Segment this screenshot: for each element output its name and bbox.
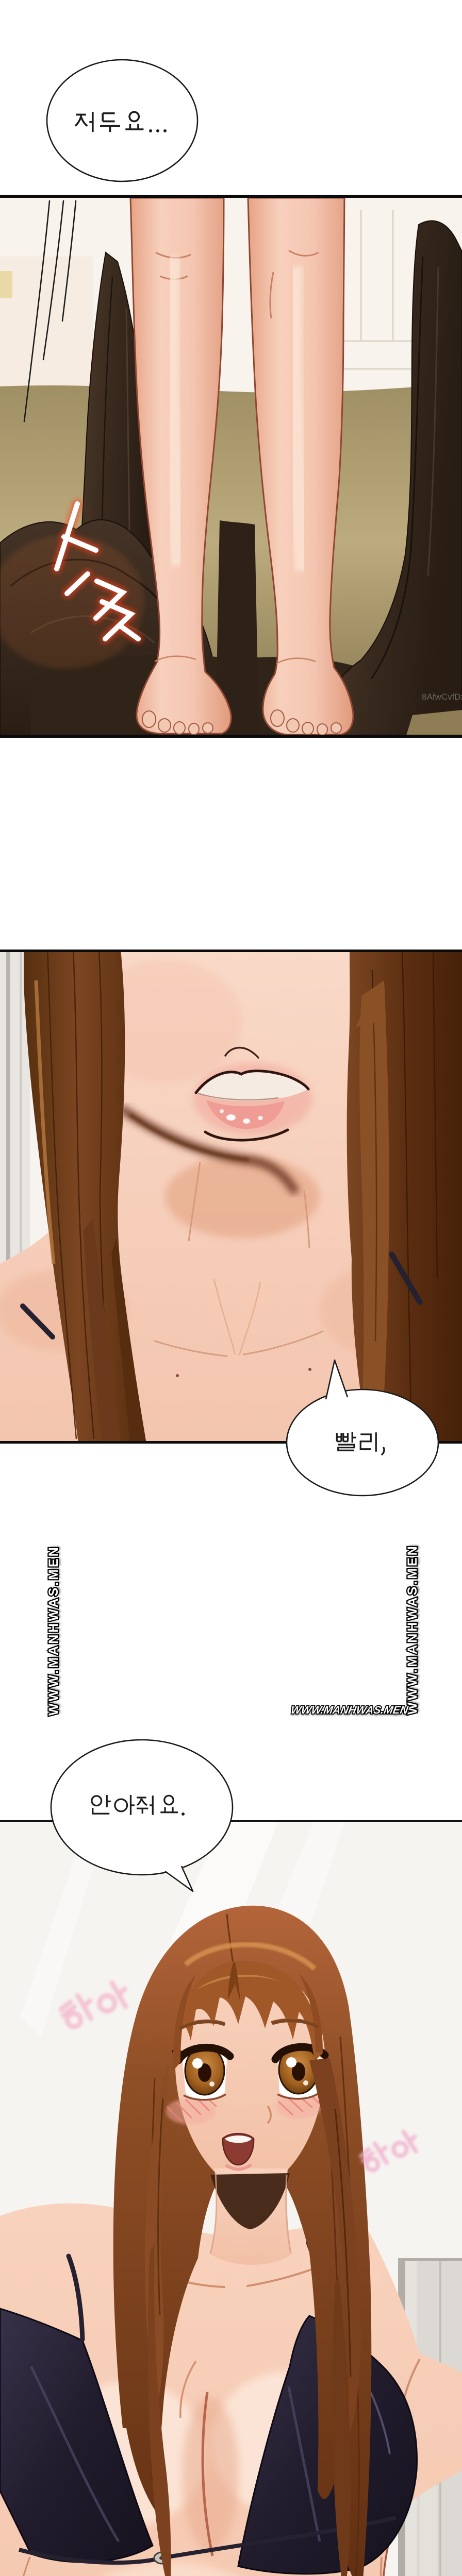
svg-text:WWW.MANHWAS.MEN: WWW.MANHWAS.MEN [405, 1544, 420, 1715]
svg-text:WWW.MANHWAS.MEN: WWW.MANHWAS.MEN [290, 1704, 409, 1716]
svg-text:WWW.MANHWAS.MEN: WWW.MANHWAS.MEN [46, 1545, 61, 1716]
